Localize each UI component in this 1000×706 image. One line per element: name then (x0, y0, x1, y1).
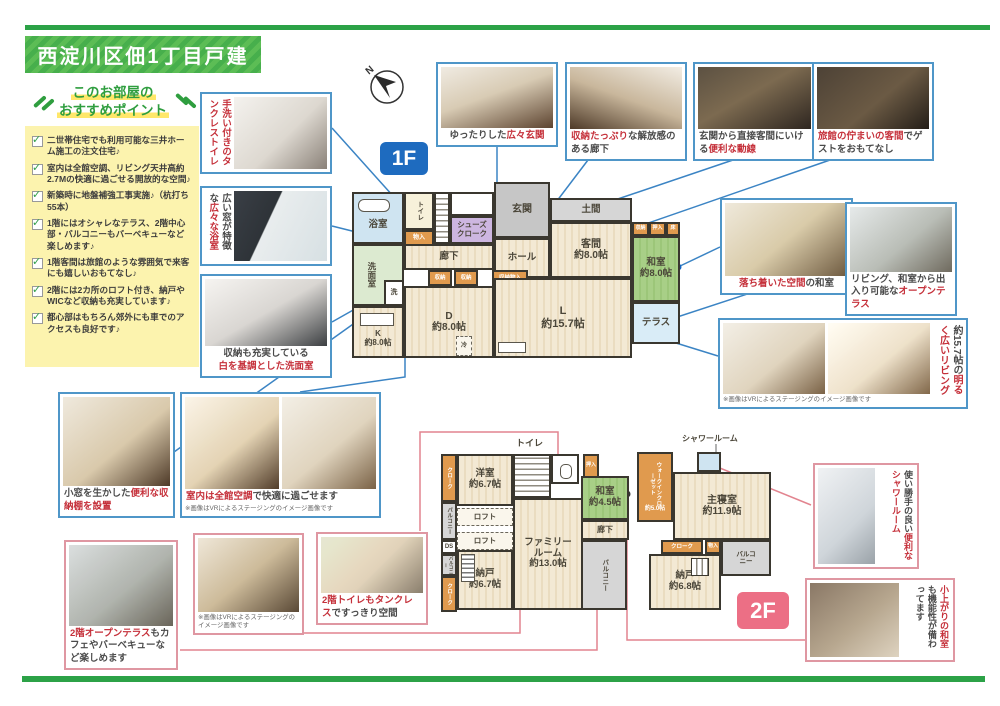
room-2f-toilet (551, 454, 579, 484)
room-2f-balcony-bottom: バルコニー (581, 540, 627, 610)
photo-kyakuma (817, 67, 929, 129)
room-1f-dining: D 約8.0帖 (404, 286, 494, 358)
room-2f-cloak-b: クローク (661, 540, 703, 554)
photo-caption: 約15.7帖の明るく広いリビング (933, 323, 963, 404)
room-2f-shower (697, 452, 721, 472)
photo-card-family-vr: ※画像はVRによるステージングのイメージ画像です (193, 533, 304, 635)
recommend-points-box: 二世帯住宅でも利用可能な三井ホーム施工の注文住宅♪ 室内は全館空調、リビング天井… (25, 126, 199, 367)
photo-card-bathroom: 広い窓が特徴な広々な浴室 (200, 186, 332, 266)
room-1f-genkan: 玄関 (494, 182, 550, 238)
room-2f-cloak-tl: クローク (441, 454, 457, 502)
stairs-2f (513, 454, 551, 498)
photo-shelf (63, 397, 170, 486)
room-2f-rouka: 廊下 (581, 520, 629, 540)
room-2f-yoshitsu: 洋室 約6.7帖 (457, 454, 513, 506)
photo-koagari-washitsu (810, 583, 899, 657)
photo-caption: 小窓を生かした便利な収納棚を設置 (63, 488, 170, 513)
photo-caption: 旅館の佇まいの客間でゲストをおもてなし (817, 131, 929, 156)
room-2f-cloak-left: クローク (441, 576, 457, 612)
room-2f-balcony-right: バルコニー (721, 540, 771, 576)
point-text: 都心部はもちろん郊外にも車でのアクセスも良好です♪ (47, 312, 192, 335)
photo-shower (818, 468, 875, 564)
room-1f-shuno2: 収納 (454, 270, 478, 286)
living-photo-pair (723, 323, 930, 394)
badge-1f-label: 1F (392, 147, 417, 171)
photo-card-dousen: 玄関から直接客間にいける便利な動線 (693, 62, 816, 161)
point-text: 新築時に地盤補強工事実施♪（杭打ち55本） (47, 190, 192, 213)
floorplan-1f: 浴室 トイレ 物入 シューズクローク 玄関 土間 客間 約8.0帖 収納 押入 … (352, 170, 686, 360)
point-text: 二世帯住宅でも利用可能な三井ホーム施工の注文住宅♪ (47, 135, 192, 158)
point-item: 二世帯住宅でも利用可能な三井ホーム施工の注文住宅♪ (32, 135, 192, 158)
photo-caption: 収納たっぷりな解放感のある廊下 (570, 131, 682, 156)
room-1f-rouka: 廊下 (404, 244, 494, 270)
photo-caption: リビング、和室から出入り可能なオープンテラス (850, 274, 952, 311)
room-2f-loft2: ロフト (457, 532, 513, 550)
compass-icon: N (362, 60, 410, 110)
room-1f-bath: 浴室 (352, 192, 404, 244)
stairs-2f-small (691, 558, 709, 576)
room-2f-shushin: 主寝室 約11.9帖 (673, 472, 771, 540)
stair-landing-1f (450, 192, 494, 216)
photo-card-genkan: ゆったりした広々玄関 (436, 62, 558, 147)
page-title-banner: 西淀川区佃1丁目戸建 (25, 36, 261, 73)
chevron-left-icon (36, 92, 56, 112)
photo-caption: 2階トイレもタンクレスですっきり空間 (321, 595, 423, 620)
photo-genkan (441, 67, 553, 128)
bathtub-icon (358, 199, 390, 212)
photo-toilet-1f (234, 97, 327, 169)
room-1f-toilet: トイレ (404, 192, 434, 230)
photo-caption: 手洗い付きのタンクレストイレ (205, 97, 231, 169)
label-2f-toilet: トイレ (516, 436, 543, 449)
room-1f-kitchen: K 約8.0帖 (352, 306, 404, 358)
checkbox-icon (32, 191, 43, 202)
point-text: 2階には2カ所のロフト付き、納戸やWICなど収納も充実しています♪ (47, 285, 192, 308)
photo-card-shower: 使い勝手の良い便利なシャワールーム (813, 463, 919, 569)
photo-rouka (570, 67, 682, 129)
recommend-header-line2: おすすめポイント (57, 103, 169, 118)
photo-card-open-terrace: リビング、和室から出入り可能なオープンテラス (845, 202, 957, 316)
photo-bathroom (234, 191, 327, 261)
photo-caption: 室内は全館空調で快適に過ごせます (185, 491, 376, 503)
vr-note: ※画像はVRによるステージングのイメージ画像です (198, 614, 299, 630)
photo-toilet-2f (321, 537, 423, 593)
photo-open-terrace (850, 207, 952, 272)
room-2f-ds: DS (441, 540, 457, 554)
photo-card-living: ※画像はVRによるステージングのイメージ画像です 約15.7帖の明るく広いリビン… (718, 318, 968, 409)
page-title: 西淀川区佃1丁目戸建 (37, 40, 248, 69)
room-2f-nando1: 納戸 約6.7帖 (457, 550, 513, 610)
photo-card-toilet-2f: 2階トイレもタンクレスですっきり空間 (316, 532, 428, 625)
point-item: 1階にはオシャレなテラス、2階中心部・バルコニーもバーベキューなど楽しめます♪ (32, 218, 192, 252)
photo-caption: 2階オープンテラスもカフェやバーベキューなど楽しめます (69, 628, 173, 665)
photo-caption: 使い勝手の良い便利なシャワールーム (878, 468, 914, 564)
room-2f-balcony-left2: バルコニー (441, 554, 457, 576)
photo-caption: 収納も充実している白を基調とした洗面室 (205, 348, 327, 373)
point-text: 室内は全館空調、リビング天井高約2.7Mの快適に過ごせる開放的な空間♪ (47, 163, 192, 186)
toilet-icon (560, 464, 572, 479)
room-1f-terrace: テラス (632, 302, 680, 344)
photo-kitchen (185, 397, 279, 489)
photo-card-tankless-toilet: 手洗い付きのタンクレストイレ (200, 92, 332, 174)
point-item: 1階客間は旅館のような雰囲気で来客にも嬉しいおもてなし♪ (32, 257, 192, 280)
room-2f-family: ファミリールーム 約13.0帖 (513, 498, 583, 610)
flyer-page: 西淀川区佃1丁目戸建 このお部屋の おすすめポイント 二世帯住宅でも利用可能な三… (0, 0, 1000, 706)
counter-icon (498, 342, 526, 353)
photo-dousen (698, 67, 811, 129)
photo-caption: 落ち着いた空間の和室 (725, 278, 848, 290)
photo-caption: ゆったりした広々玄関 (441, 130, 553, 142)
floorplan-2f: クローク 洋室 約6.7帖 押入 バルコニー DS バルコニー クローク ロフト… (437, 452, 773, 614)
photo-terrace-2f (69, 545, 173, 626)
point-item: 室内は全館空調、リビング天井高約2.7Mの快適に過ごせる開放的な空間♪ (32, 163, 192, 186)
chevron-right-icon (176, 90, 196, 110)
room-2f-loft1: ロフト (457, 508, 513, 526)
photo-card-shelf: 小窓を生かした便利な収納棚を設置 (58, 392, 175, 518)
room-2f-washitsu: 和室 約4.5帖 (581, 476, 629, 520)
point-text: 1階にはオシャレなテラス、2階中心部・バルコニーもバーベキューなど楽しめます♪ (47, 218, 192, 252)
photo-caption: 広い窓が特徴な広々な浴室 (205, 191, 231, 261)
vr-note: ※画像はVRによるステージングのイメージ画像です (723, 396, 930, 404)
room-2f-oshiire: 押入 (583, 454, 599, 478)
photo-living-2 (828, 323, 930, 394)
top-green-bar (25, 25, 990, 30)
vr-note: ※画像はVRによるステージングのイメージ画像です (185, 505, 376, 513)
photo-card-koagari: 小上がりの和室も機能性が備わってます (805, 578, 955, 662)
room-1f-toko: 床 (666, 222, 680, 236)
room-2f-nando2: 納戸 約6.8帖 (649, 554, 721, 610)
stairs-1f (434, 192, 450, 244)
room-1f-shuno-a: 収納 (632, 222, 649, 236)
photo-card-kyakuma: 旅館の佇まいの客間でゲストをおもてなし (812, 62, 934, 161)
room-1f-oshiire: 押入 (649, 222, 666, 236)
point-item: 都心部はもちろん郊外にも車でのアクセスも良好です♪ (32, 312, 192, 335)
room-1f-kyakuma: 客間 約8.0帖 (550, 222, 632, 278)
photo-card-aircon: 室内は全館空調で快適に過ごせます ※画像はVRによるステージングのイメージ画像で… (180, 392, 381, 518)
photo-card-terrace-2f: 2階オープンテラスもカフェやバーベキューなど楽しめます (64, 540, 178, 670)
photo-washitsu-1f (725, 203, 848, 276)
photo-caption: 小上がりの和室も機能性が備わってます (902, 583, 950, 657)
checkbox-icon (32, 219, 43, 230)
room-2f-balcony-left1: バルコニー (441, 502, 457, 540)
room-1f-sen: 洗 (384, 280, 404, 306)
aircon-photo-pair (185, 397, 376, 489)
photo-card-washitsu-1f: 落ち着いた空間の和室 (720, 198, 853, 295)
room-1f-shuno1: 収納 (428, 270, 452, 286)
recommend-header-line1: このお部屋の (71, 85, 156, 100)
checkbox-icon (32, 286, 43, 297)
room-2f-wic: ウォークインクローゼット 約5.0帖 (637, 452, 673, 522)
point-item: 2階には2カ所のロフト付き、納戸やWICなど収納も充実しています♪ (32, 285, 192, 308)
photo-caption: 玄関から直接客間にいける便利な動線 (698, 131, 811, 156)
room-2f-monoire: 物入 (705, 540, 721, 554)
ladder-icon (461, 554, 475, 582)
photo-card-rouka: 収納たっぷりな解放感のある廊下 (565, 62, 687, 161)
photo-dining (282, 397, 376, 489)
checkbox-icon (32, 258, 43, 269)
checkbox-icon (32, 136, 43, 147)
photo-living-1 (723, 323, 825, 394)
living-photos-wrap: ※画像はVRによるステージングのイメージ画像です (723, 323, 930, 404)
checkbox-icon (32, 164, 43, 175)
kitchen-counter-icon (360, 313, 394, 326)
point-text: 1階客間は旅館のような雰囲気で来客にも嬉しいおもてなし♪ (47, 257, 192, 280)
checkbox-icon (32, 313, 43, 324)
photo-senmen (205, 279, 327, 346)
point-item: 新築時に地盤補強工事実施♪（杭打ち55本） (32, 190, 192, 213)
fridge-icon: 冷 (456, 336, 472, 356)
photo-card-senmen: 収納も充実している白を基調とした洗面室 (200, 274, 332, 378)
room-1f-shoes-cloak: シューズクローク (450, 216, 494, 244)
room-1f-washitsu: 和室 約8.0帖 (632, 236, 680, 302)
room-1f-doma: 土間 (550, 198, 632, 222)
photo-family-room (198, 538, 299, 612)
label-2f-shower: シャワールーム (682, 433, 738, 444)
bottom-green-bar (22, 676, 985, 682)
